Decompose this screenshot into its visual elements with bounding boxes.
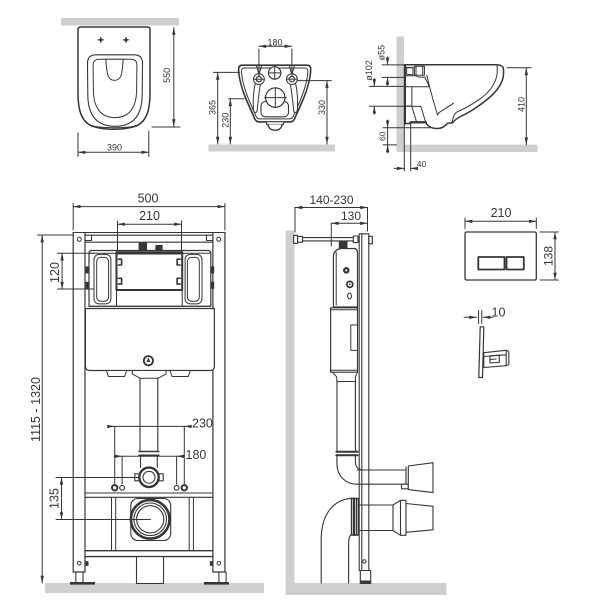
- svg-text:135: 135: [48, 488, 62, 509]
- svg-text:60: 60: [378, 131, 388, 141]
- svg-text:390: 390: [107, 142, 122, 152]
- svg-text:ø55: ø55: [377, 45, 387, 61]
- svg-text:180: 180: [186, 448, 207, 462]
- svg-text:230: 230: [192, 416, 213, 430]
- svg-text:1115 - 1320: 1115 - 1320: [29, 377, 43, 442]
- svg-text:210: 210: [491, 206, 512, 220]
- svg-text:410: 410: [516, 97, 526, 112]
- svg-text:40: 40: [417, 159, 427, 169]
- svg-text:210: 210: [139, 209, 160, 223]
- svg-text:330: 330: [317, 100, 327, 115]
- svg-text:180: 180: [267, 37, 282, 47]
- svg-text:365: 365: [208, 100, 218, 115]
- svg-text:ø102: ø102: [364, 60, 374, 81]
- svg-text:550: 550: [162, 68, 172, 83]
- svg-text:230: 230: [220, 113, 230, 128]
- svg-text:500: 500: [138, 192, 159, 206]
- svg-text:10: 10: [492, 306, 506, 320]
- svg-text:120: 120: [48, 262, 62, 283]
- svg-text:130: 130: [341, 209, 361, 223]
- svg-text:140-230: 140-230: [309, 193, 353, 207]
- svg-text:138: 138: [542, 246, 556, 266]
